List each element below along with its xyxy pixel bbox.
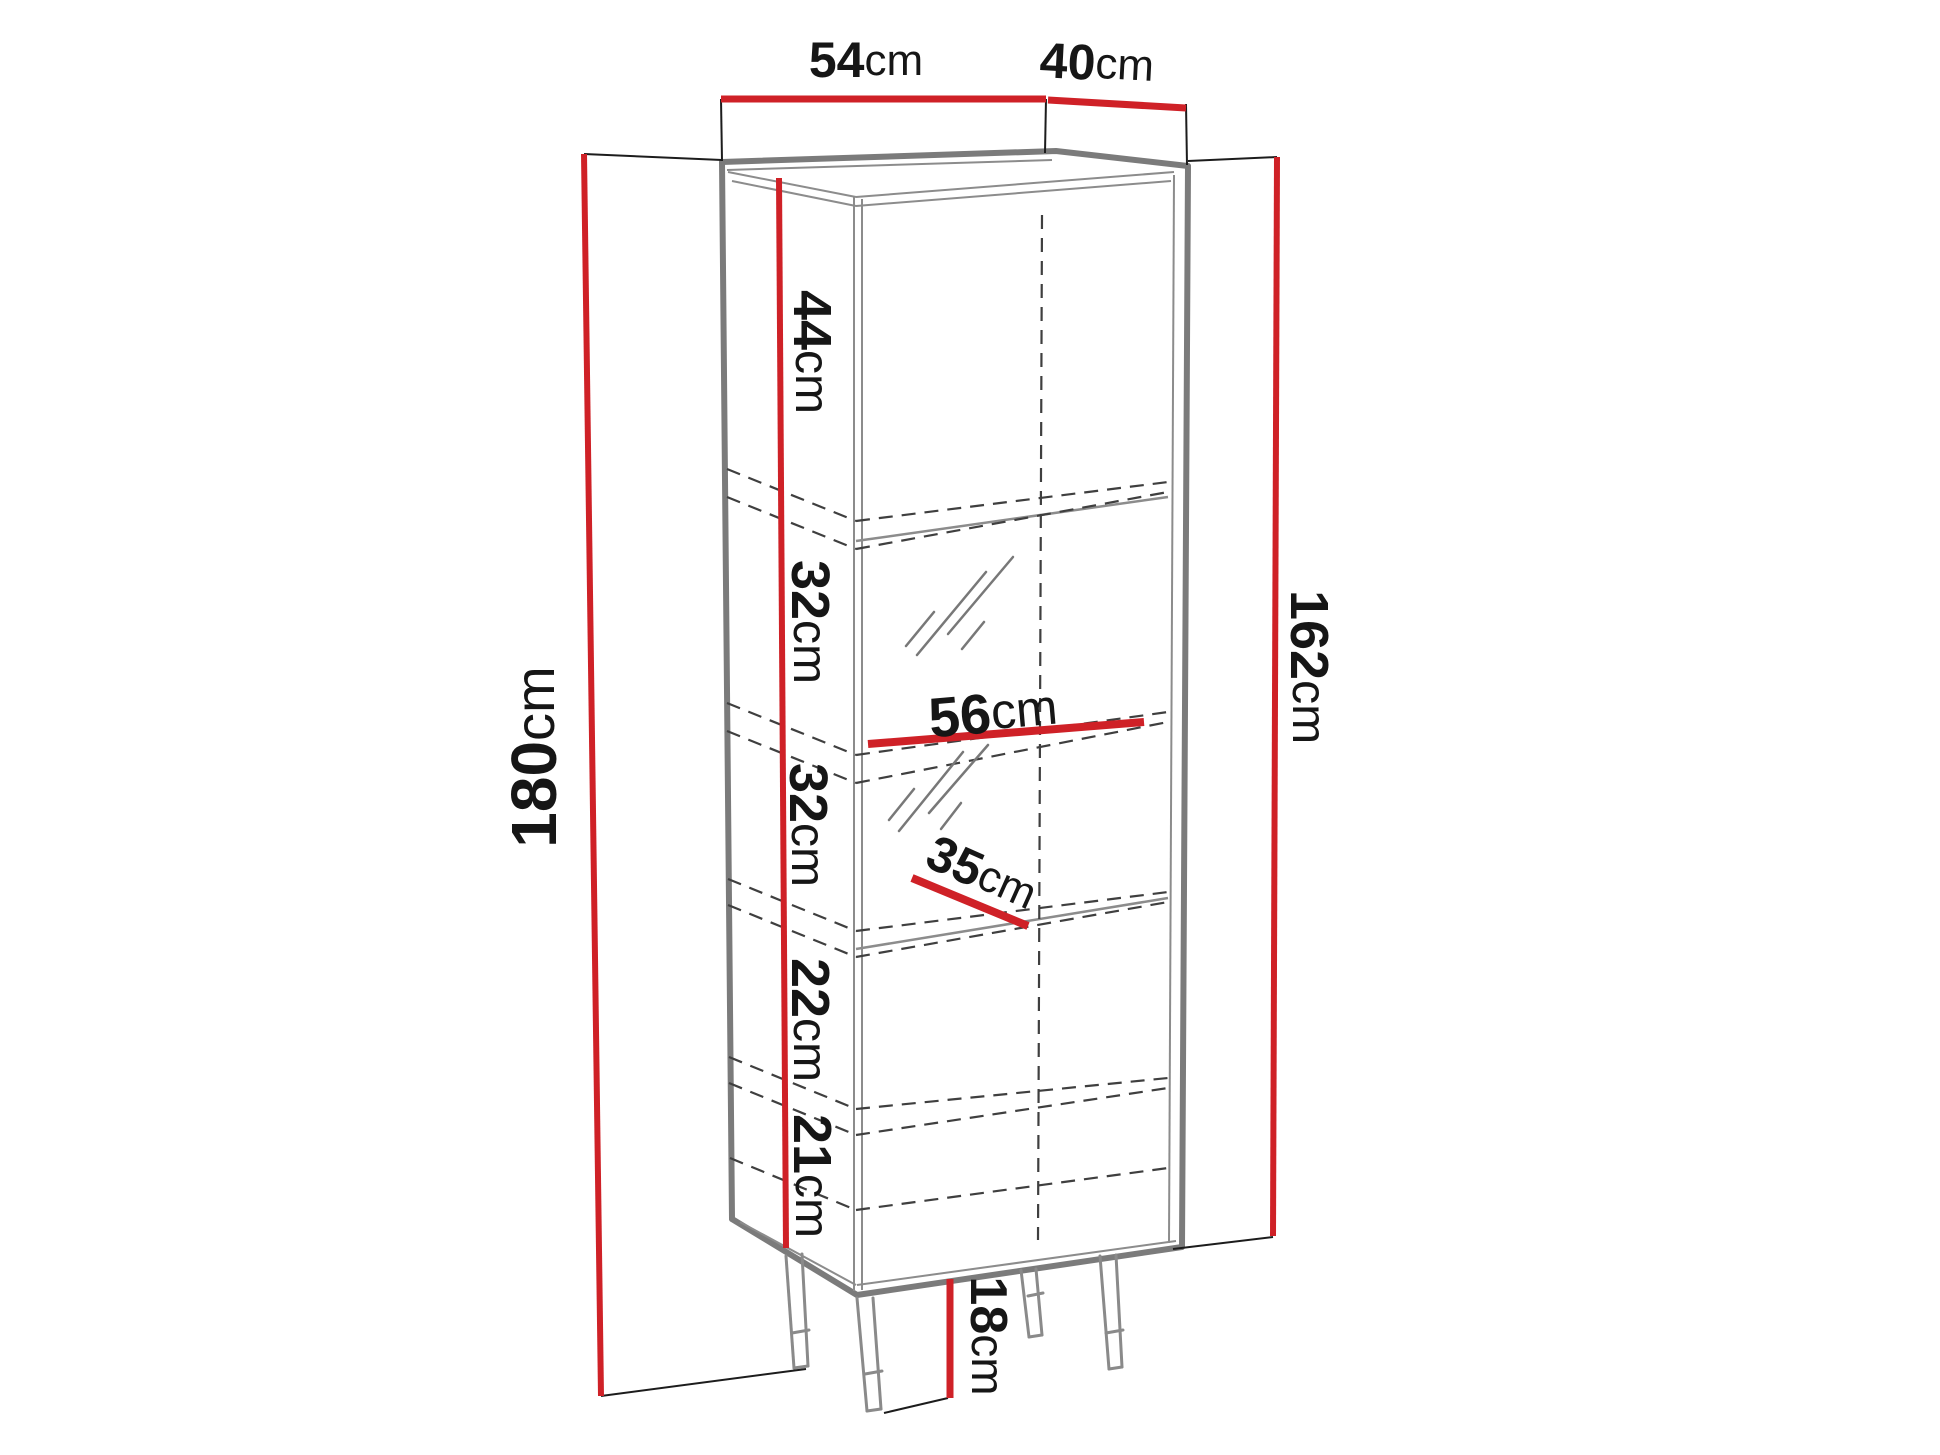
cabinet-left-edge xyxy=(722,162,732,1219)
label-leg-height: 18cm xyxy=(959,1276,1017,1395)
dim-line-body-height xyxy=(1273,157,1277,1236)
shelf4-front-line xyxy=(856,1078,1168,1109)
extension-line xyxy=(1186,104,1187,165)
leg-back-right xyxy=(1021,1269,1043,1337)
label-section-1: 44cm xyxy=(782,290,842,414)
label-section-5: 21cm xyxy=(782,1114,842,1238)
label-top-depth: 40cm xyxy=(1038,32,1155,94)
label-section-2: 32cm xyxy=(780,560,840,684)
diagram-canvas: 54cm 40cm 180cm 162cm 44cm 32cm 32cm 22c… xyxy=(0,0,1940,1455)
front-right-inner-edge xyxy=(1169,175,1174,1243)
extension-line xyxy=(721,99,722,161)
extension-line xyxy=(601,1369,806,1396)
dimension-labels: 54cm 40cm 180cm 162cm 44cm 32cm 32cm 22c… xyxy=(498,32,1339,1396)
cabinet-dimension-diagram: 54cm 40cm 180cm 162cm 44cm 32cm 32cm 22c… xyxy=(0,0,1940,1455)
leg-front-right xyxy=(1100,1255,1123,1369)
legs xyxy=(786,1254,1123,1411)
glass-stroke xyxy=(948,557,1013,634)
extension-line xyxy=(1173,1237,1273,1249)
leg-front-center xyxy=(857,1298,882,1411)
bottom-shelf-front-line xyxy=(856,1168,1168,1210)
extension-line xyxy=(584,154,722,160)
dim-line-total-height xyxy=(584,154,601,1396)
shelf1-front-line xyxy=(856,492,1168,549)
label-top-width: 54cm xyxy=(809,32,923,88)
glass-hatch-icon xyxy=(889,745,988,831)
label-total-height: 180cm xyxy=(498,666,570,847)
glass-hatch-icon xyxy=(906,557,1013,655)
leg-front-left xyxy=(786,1254,809,1368)
shelf3-side-line xyxy=(728,905,856,957)
glass-door-top-edge xyxy=(856,497,1168,541)
extension-line xyxy=(1188,157,1277,161)
cabinet-right-edge xyxy=(1182,166,1188,1247)
label-shelf-width: 56cm xyxy=(926,675,1060,749)
extension-line xyxy=(1045,99,1046,153)
label-body-height: 162cm xyxy=(1279,590,1339,744)
label-section-3: 32cm xyxy=(778,763,838,887)
shelf1-side-line xyxy=(727,497,856,549)
shelf4-front-line xyxy=(856,1088,1168,1135)
glass-stroke xyxy=(962,622,984,649)
glass-stroke xyxy=(929,745,988,813)
shelf1-front-line xyxy=(856,482,1168,521)
glass-stroke xyxy=(899,752,963,831)
glass-stroke xyxy=(917,572,986,655)
shelf1-side-line xyxy=(727,469,856,521)
label-section-4: 22cm xyxy=(780,958,840,1082)
dim-line-top-depth xyxy=(1048,100,1186,108)
extension-line xyxy=(884,1398,948,1413)
shelf2-side-line xyxy=(727,703,856,755)
